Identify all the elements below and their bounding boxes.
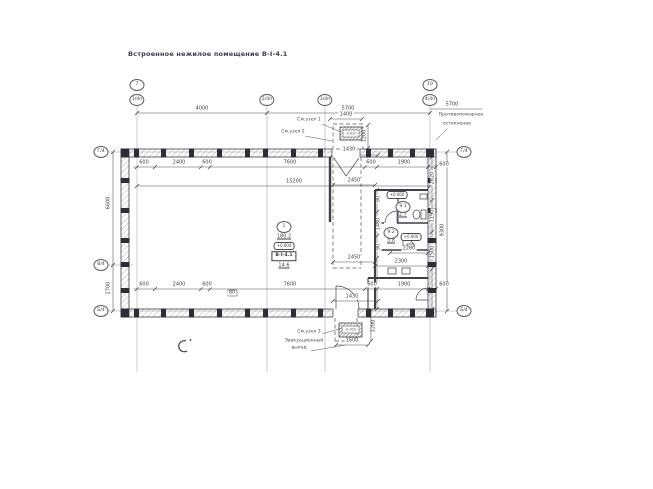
dim-label: 7600: [283, 161, 298, 166]
dim-label: 2400: [172, 283, 187, 288]
dim-label: 600: [438, 163, 450, 168]
dim-label: 15200: [285, 180, 303, 185]
dim-label: 2450: [347, 256, 362, 261]
dim-label: 4000: [195, 107, 210, 112]
axis-bubble-b4-right: Б/4: [457, 305, 472, 317]
drawing-page: { "title": "Встроенное нежилое помещение…: [0, 0, 653, 489]
axis-bubble-10: 10: [423, 79, 438, 91]
axis-bubble-v4-left: В/4: [94, 259, 109, 271]
room-9-1-elevation: +0.000: [387, 191, 408, 199]
dim-label: 600: [201, 283, 213, 288]
top-porch-elevation: -0.020: [345, 132, 356, 136]
dim-label: 1500: [431, 245, 436, 260]
dim-label: 2400: [172, 161, 187, 166]
elevation-mark: +0.000: [274, 242, 295, 250]
dim-label: 1600: [345, 339, 360, 344]
dim-label: 1200: [363, 129, 368, 144]
dimension-labels-layer: 4000570057001400120014306002400600760060…: [0, 0, 653, 489]
dim-label: 1480: [377, 217, 382, 232]
dim-label: 2300: [394, 260, 409, 265]
dim-label: 600: [138, 283, 150, 288]
dim-label: 7600: [283, 283, 298, 288]
dim-label: 1430: [342, 148, 357, 153]
dim-label: 1400: [339, 113, 354, 118]
bottom-porch-elevation: -0.020: [345, 328, 356, 332]
dim-label: 600: [201, 161, 213, 166]
unit-number-box: В-I-4.1: [271, 251, 296, 261]
dim-label: 1900: [397, 161, 412, 166]
room-9-2-elevation: +0.000: [401, 233, 422, 241]
dim-label: 2280: [402, 247, 417, 252]
axis-bubble-g4-left: Г/4: [94, 146, 109, 158]
dim-label: 6600: [107, 196, 112, 211]
dim-label: 90: [377, 195, 382, 203]
axis-bubble-7: 7: [130, 79, 145, 91]
dim-label: 5700: [445, 103, 460, 108]
dim-label: 600: [366, 283, 378, 288]
dim-label: 1900: [397, 283, 412, 288]
dim-label: 1430: [345, 295, 360, 300]
dim-label: 1190: [431, 209, 436, 224]
dim-label: 600: [438, 283, 450, 288]
dim-label: 600: [365, 161, 377, 166]
room-9-1-bubble: 9.1: [396, 201, 411, 213]
dim-label: 2700: [107, 281, 112, 296]
dim-label: 1200: [372, 319, 377, 334]
dim-label: 600: [138, 161, 150, 166]
axis-bubble-b4-left: Б/4: [94, 305, 109, 317]
room-number-bubble: 1: [277, 221, 292, 233]
dim-label: 2620: [431, 171, 436, 186]
dim-label: 80: [228, 291, 236, 296]
room-9-2-bubble: 9.2: [384, 227, 399, 239]
dim-label: 90: [377, 243, 382, 251]
dim-label: 2450: [347, 179, 362, 184]
axis-bubble-g4-right: Г/4: [457, 146, 472, 158]
dim-label: 9300: [441, 223, 446, 238]
